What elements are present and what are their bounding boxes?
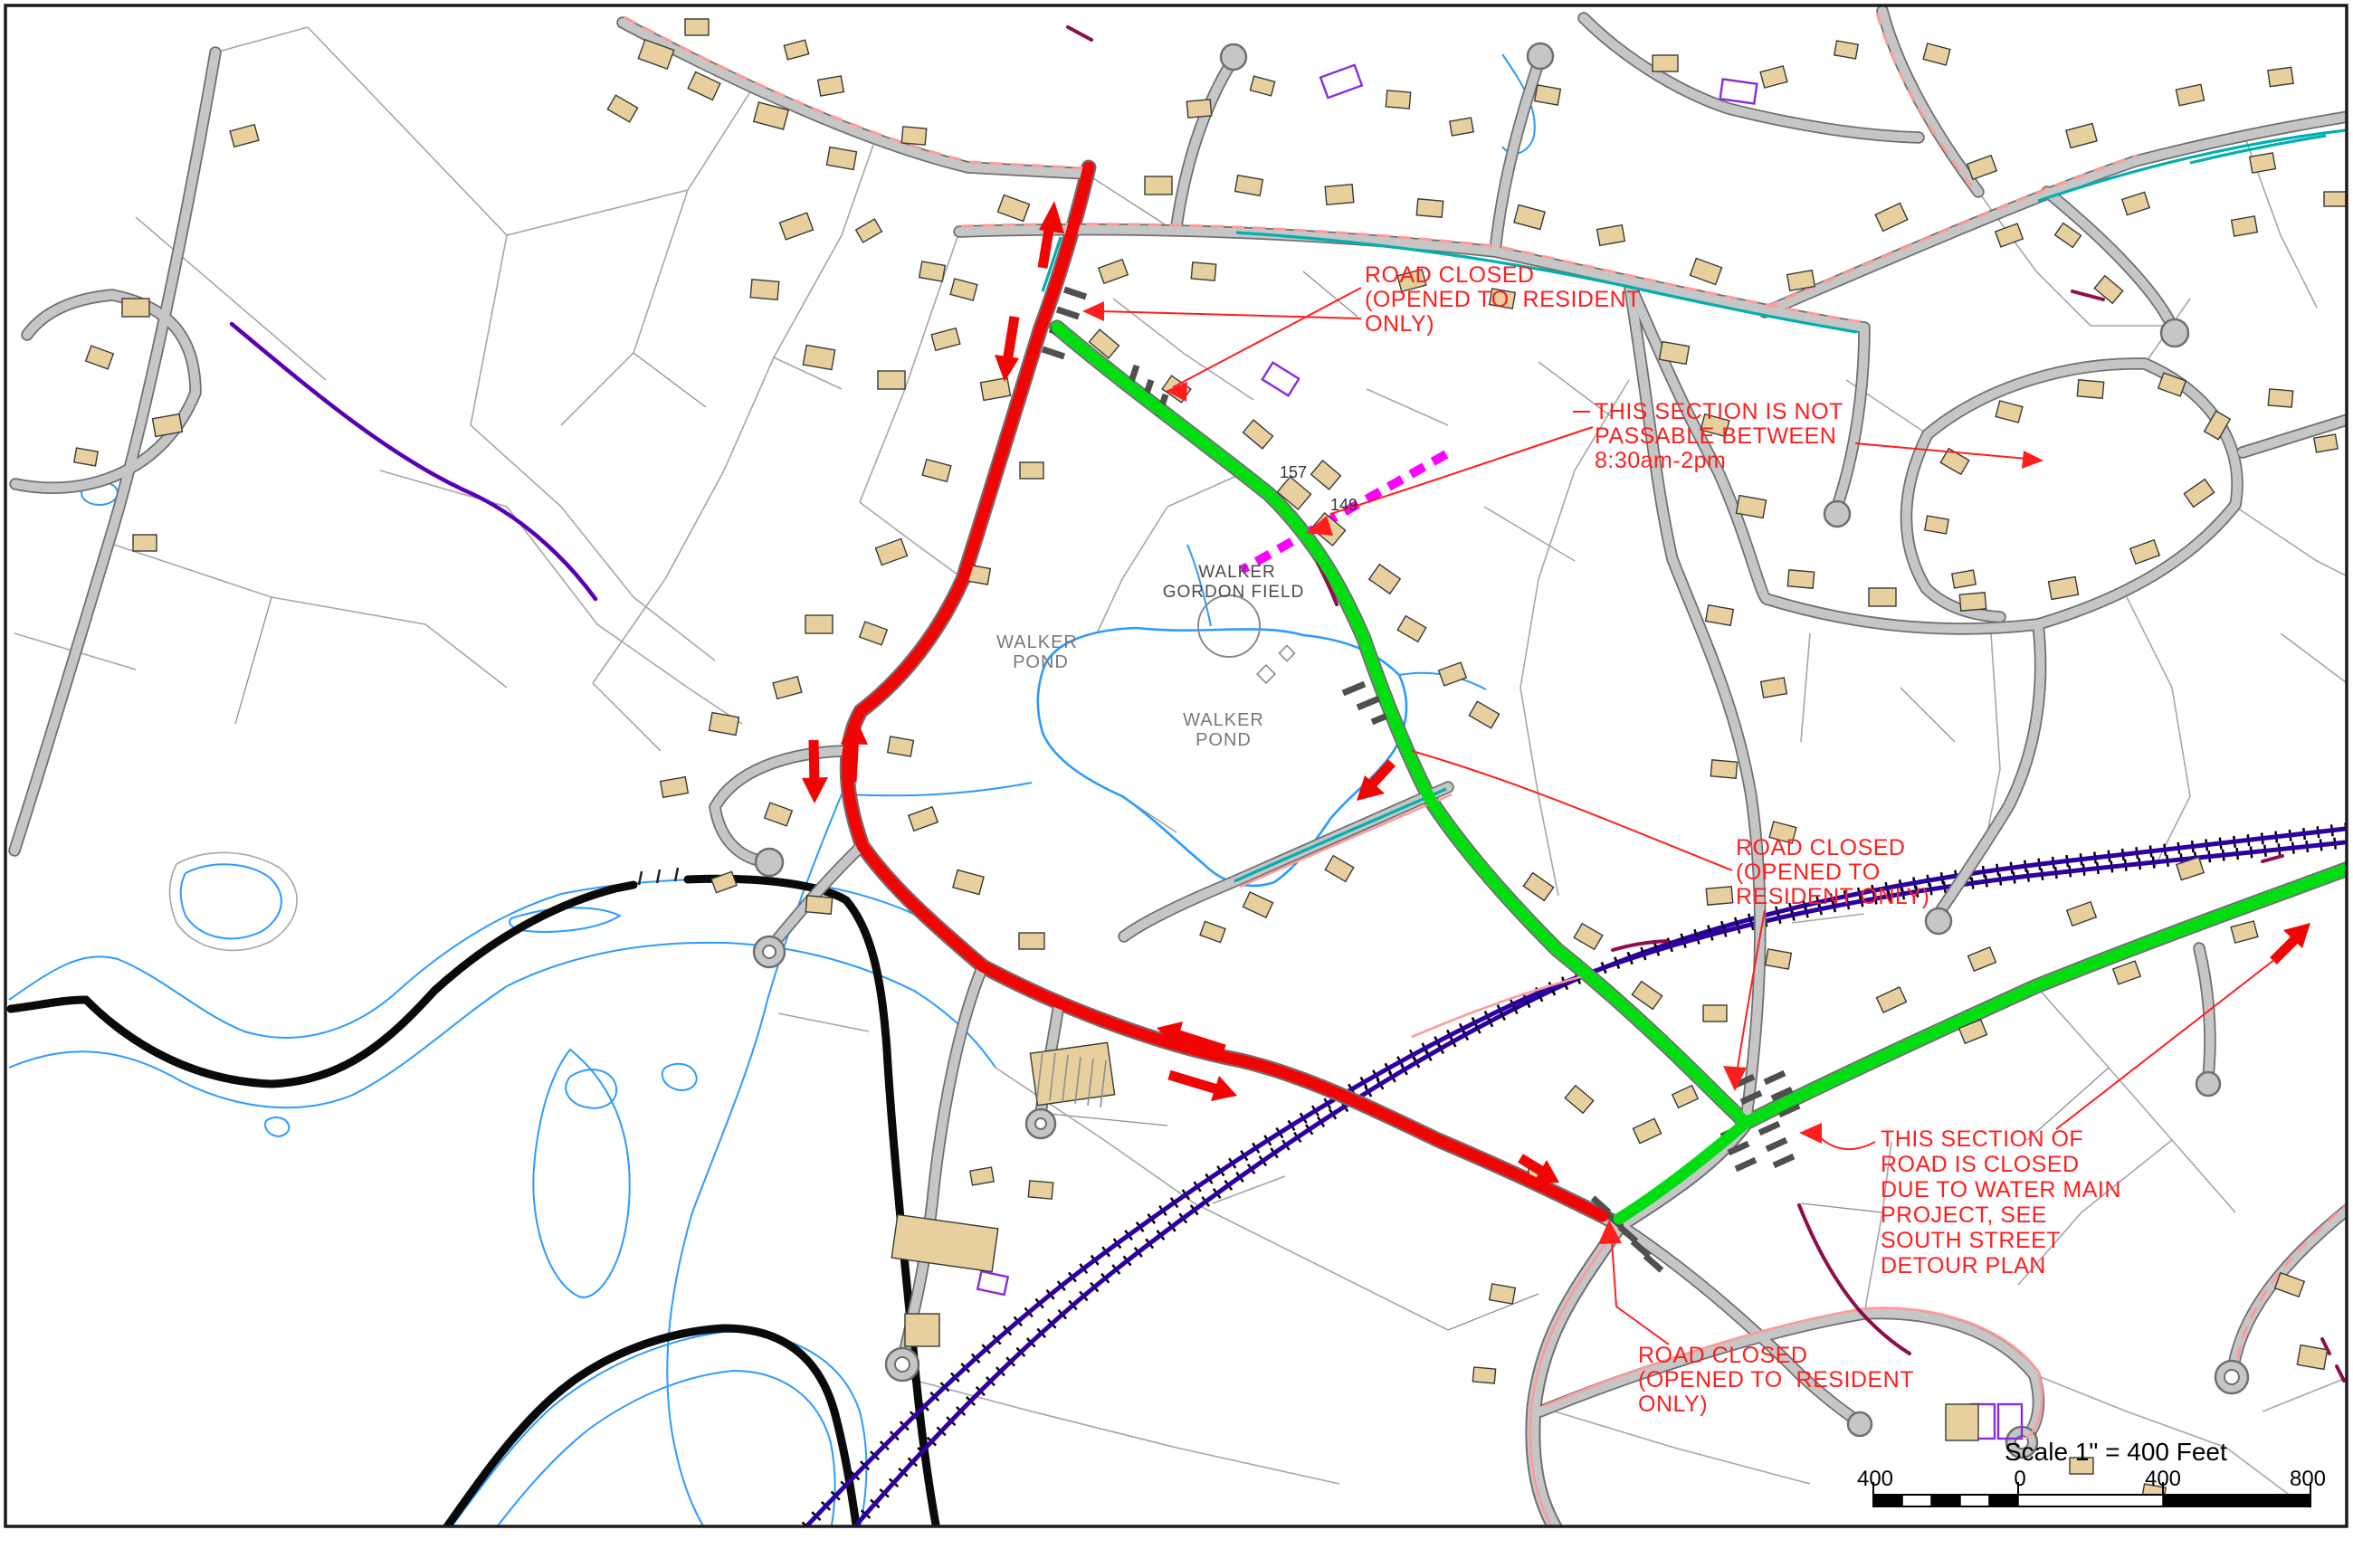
building (1996, 223, 2024, 247)
building (2232, 216, 2258, 236)
svg-text:(OPENED TO RESIDENT: (OPENED TO RESIDENT (1365, 287, 1641, 312)
municipal-boundary (11, 868, 943, 1562)
road-south-street-sw (1533, 1225, 1620, 1527)
building (818, 76, 844, 96)
building (901, 127, 926, 145)
building (661, 777, 689, 798)
svg-text:(OPENED TO RESIDENT: (OPENED TO RESIDENT (1638, 1367, 1914, 1392)
building (2048, 577, 2078, 600)
building (1311, 461, 1341, 489)
building (86, 346, 114, 369)
svg-text:(OPENED TO: (OPENED TO (1736, 860, 1881, 885)
building (2268, 67, 2293, 86)
building (2122, 192, 2149, 214)
building (919, 261, 946, 281)
walker-pond-upper-label: POND (1013, 652, 1069, 672)
building (1186, 100, 1211, 118)
building (1514, 204, 1545, 229)
building (1250, 76, 1274, 96)
building (780, 213, 814, 240)
building (1369, 565, 1400, 594)
building (1490, 1284, 1516, 1304)
building (765, 803, 793, 826)
building (750, 280, 779, 300)
svg-text:PASSABLE BETWEEN: PASSABLE BETWEEN (1595, 423, 1836, 449)
building (1325, 185, 1354, 205)
building (1710, 760, 1737, 778)
building (1191, 262, 1215, 280)
building (1020, 462, 1043, 479)
building (1439, 662, 1467, 686)
building (805, 615, 833, 633)
buildings-layer (74, 19, 2346, 1502)
svg-text:ROAD CLOSED: ROAD CLOSED (1736, 835, 1905, 860)
building (1736, 496, 1766, 518)
building (2158, 373, 2186, 396)
detour-plan-map: WALKER POND WALKER POND WALKER GORDON FI… (0, 0, 2353, 1568)
building (805, 896, 832, 914)
building (2077, 380, 2103, 398)
building (74, 448, 98, 466)
building (1766, 949, 1792, 969)
building (1565, 1086, 1593, 1114)
svg-text:8:30am-2pm: 8:30am-2pm (1595, 448, 1726, 473)
house-number-149: 149 (1330, 496, 1357, 514)
annotations: ROAD CLOSED (OPENED TO RESIDENT ONLY) TH… (1365, 262, 2121, 1417)
building (2113, 961, 2141, 984)
building (1653, 55, 1678, 71)
building (1386, 90, 1410, 109)
building (1925, 516, 1948, 534)
building (826, 147, 856, 170)
building (1787, 271, 1815, 291)
building (875, 538, 907, 565)
building (860, 622, 888, 645)
building (1690, 258, 1721, 284)
building (931, 328, 960, 351)
building (1996, 401, 2023, 423)
building (1472, 1367, 1495, 1383)
stream-loop-b (471, 1371, 835, 1562)
walker-pond-lower-label: WALKER (1183, 710, 1264, 730)
parcel-lines (14, 27, 2353, 1502)
building (2184, 480, 2214, 508)
svg-text:ONLY): ONLY) (1638, 1392, 1708, 1417)
svg-text:ONLY): ONLY) (1365, 311, 1434, 337)
building (2055, 223, 2081, 248)
annotation-road-closed-middle: ROAD CLOSED (OPENED TO RESIDENT ONLY) (1736, 835, 1929, 909)
building (1397, 616, 1426, 642)
building (950, 279, 977, 300)
svg-text:PROJECT, SEE: PROJECT, SEE (1881, 1202, 2047, 1228)
building (1834, 41, 1858, 59)
building (1706, 887, 1732, 905)
building (1523, 873, 1553, 901)
pond-outlet-stream (667, 783, 1032, 1544)
building (2066, 123, 2097, 147)
annotation-water-main-closure: THIS SECTION OF ROAD IS CLOSED DUE TO WA… (1881, 1126, 2121, 1278)
building (1923, 43, 1950, 65)
building (1968, 947, 1996, 971)
building (997, 195, 1029, 221)
building (773, 677, 802, 699)
svg-text:SOUTH STREET: SOUTH STREET (1881, 1228, 2061, 1253)
building (2275, 1273, 2304, 1297)
building (607, 95, 637, 122)
building (1659, 342, 1689, 365)
building (230, 125, 259, 147)
building (709, 713, 738, 736)
river-lower-bank (9, 943, 995, 1107)
building (1597, 225, 1625, 246)
building (1869, 588, 1896, 606)
annotation-road-closed-bottom: ROAD CLOSED (OPENED TO RESIDENT ONLY) (1638, 1343, 1914, 1417)
ball-field (1198, 595, 1294, 683)
building (1145, 176, 1172, 195)
building (1787, 570, 1814, 588)
building (2067, 902, 2096, 926)
svg-text:ROAD CLOSED: ROAD CLOSED (1365, 262, 1534, 288)
building (2314, 434, 2338, 452)
building (1028, 1181, 1053, 1199)
svg-text:DETOUR PLAN: DETOUR PLAN (1881, 1253, 2046, 1278)
building (1706, 605, 1734, 626)
building (1535, 85, 1561, 105)
building (1967, 156, 1996, 179)
building (970, 1167, 994, 1185)
scale-tick-label: 0 (2014, 1467, 2025, 1491)
walker-pond-outline (1038, 628, 1406, 886)
building (1243, 892, 1273, 917)
building (2268, 389, 2292, 407)
walker-pond-lower-label: POND (1196, 730, 1252, 750)
building (1574, 924, 1603, 950)
building (1703, 1005, 1727, 1022)
scale-tick-label: 400 (1857, 1467, 1893, 1491)
building (980, 378, 1010, 401)
building (2250, 153, 2276, 173)
building (122, 299, 149, 317)
building (1243, 420, 1272, 449)
building (1325, 856, 1354, 882)
building (856, 219, 882, 242)
scale-title: Scale 1" = 400 Feet (2005, 1438, 2227, 1466)
building (1760, 66, 1787, 88)
building (1672, 1086, 1699, 1108)
building (1633, 1118, 1661, 1143)
building (878, 371, 905, 389)
building (1761, 678, 1787, 698)
building (1959, 593, 1986, 611)
walker-gordon-field-label: GORDON FIELD (1163, 583, 1305, 602)
walker-pond-upper-label: WALKER (996, 632, 1078, 652)
map-labels: WALKER POND WALKER POND WALKER GORDON FI… (996, 463, 1357, 750)
building (1200, 921, 1225, 942)
road-closed-main (847, 167, 1620, 1225)
building (1099, 260, 1128, 283)
house-number-157: 157 (1280, 463, 1307, 481)
building (953, 870, 984, 894)
scale-tick-label: 800 (2290, 1467, 2326, 1491)
building (888, 736, 914, 756)
walker-gordon-field-label: WALKER (1198, 563, 1276, 582)
building (152, 414, 182, 437)
svg-text:RESIDENT ONLY): RESIDENT ONLY) (1736, 884, 1929, 909)
building (909, 807, 938, 831)
building (1019, 933, 1044, 949)
building (1450, 118, 1473, 136)
wetland-blob-large (533, 1050, 629, 1297)
building (133, 535, 157, 551)
building (1235, 176, 1263, 196)
building (803, 345, 834, 369)
map-canvas: WALKER POND WALKER POND WALKER GORDON FI… (0, 0, 2353, 1568)
building (685, 19, 709, 35)
svg-text:DUE TO WATER MAIN: DUE TO WATER MAIN (1881, 1177, 2121, 1202)
building (1875, 204, 1908, 232)
building (2231, 921, 2258, 943)
annotation-not-passable: THIS SECTION IS NOT PASSABLE BETWEEN 8:3… (1595, 399, 1843, 473)
svg-text:ROAD CLOSED: ROAD CLOSED (1638, 1343, 1807, 1368)
building (2297, 1345, 2327, 1370)
building (2130, 540, 2159, 564)
building (1952, 570, 1976, 588)
building (2324, 192, 2346, 206)
building (784, 40, 808, 60)
purple-line-upperleft (232, 324, 595, 599)
building (1469, 701, 1499, 728)
svg-text:ROAD IS CLOSED: ROAD IS CLOSED (1881, 1152, 2080, 1177)
building (1632, 982, 1662, 1010)
svg-text:THIS SECTION OF: THIS SECTION OF (1881, 1126, 2083, 1152)
building (1877, 987, 1907, 1012)
building (1416, 199, 1443, 217)
svg-text:THIS SECTION IS NOT: THIS SECTION IS NOT (1595, 399, 1843, 424)
building (922, 460, 951, 482)
building (2176, 84, 2204, 105)
